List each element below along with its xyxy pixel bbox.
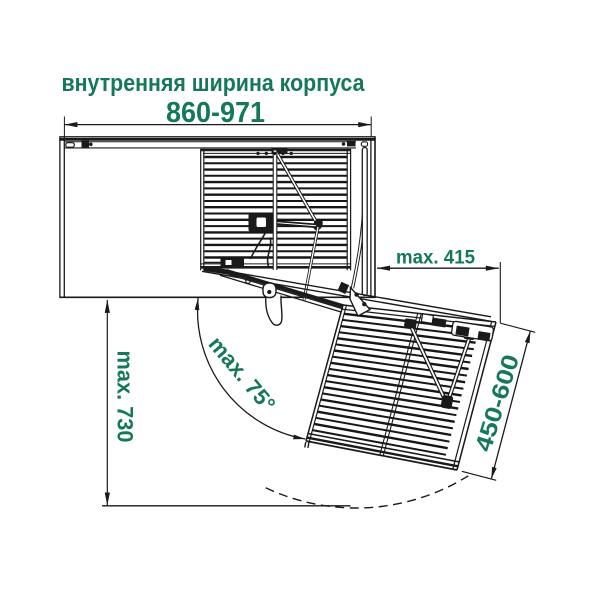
svg-text:max. 730: max. 730: [113, 351, 138, 443]
svg-text:max. 415: max. 415: [396, 246, 475, 268]
svg-text:внутренняя ширина корпуса: внутренняя ширина корпуса: [62, 70, 365, 97]
